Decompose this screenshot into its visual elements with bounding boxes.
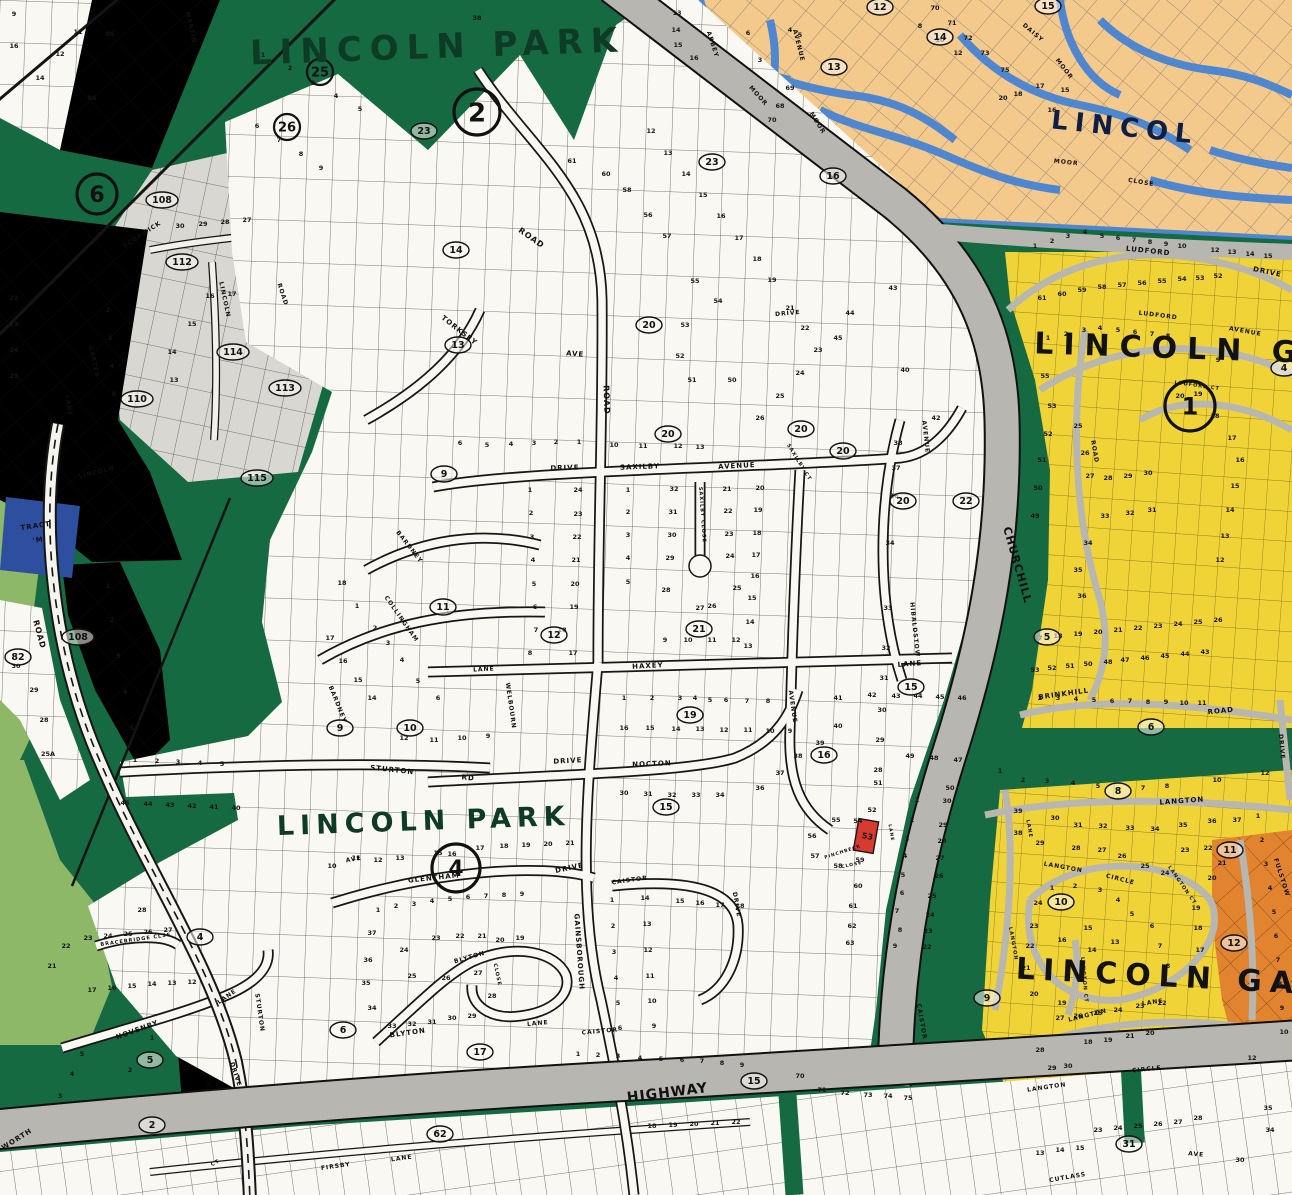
oval-marker: 108	[146, 192, 178, 208]
lot-number: 44	[1180, 650, 1190, 658]
lot-number: 12	[187, 978, 196, 986]
lot-number: 2	[110, 616, 115, 624]
lot-number: 35	[1263, 1104, 1273, 1112]
lot-number: 2	[1073, 882, 1078, 890]
lot-number: 19	[515, 934, 525, 942]
lot-number: 5	[1100, 232, 1105, 240]
lot-number: 18	[499, 842, 509, 850]
lot-number: 22	[731, 1118, 740, 1126]
oval-marker-number: 16	[826, 171, 840, 182]
lot-number: 14	[1055, 1146, 1065, 1154]
lot-number: 18	[1193, 924, 1203, 932]
lot-number: 6	[618, 1024, 623, 1032]
lot-number: 34	[885, 539, 895, 547]
lot-number: 16	[689, 54, 699, 62]
lot-number: 1	[998, 767, 1003, 775]
lot-number: 2	[611, 922, 616, 930]
lot-number: 18	[1083, 1038, 1093, 1046]
lot-number: 28	[937, 837, 947, 845]
lot-number: 70	[767, 116, 777, 124]
lot-number: 35	[1178, 821, 1188, 829]
lot-number: 20	[689, 1120, 699, 1128]
lot-number: 27	[1097, 846, 1106, 854]
lot-number: 6	[1110, 697, 1115, 705]
lot-number: 19	[569, 603, 579, 611]
lot-number: 31	[1147, 506, 1157, 514]
lot-number: 5	[112, 390, 117, 398]
oval-marker-number: 8	[1115, 786, 1122, 797]
lot-number: 15	[353, 676, 363, 684]
lot-number: 17	[751, 551, 760, 559]
lot-number: 9	[319, 164, 324, 172]
oval-marker-number: 17	[473, 1047, 486, 1058]
lot-number: 15	[1263, 252, 1273, 260]
plat-map-page: { "map": { "colors": { "base_green": "#1…	[0, 0, 1292, 1195]
lot-number: 42	[187, 802, 196, 810]
lot-number: 52	[1047, 664, 1056, 672]
lot-number: 58	[1097, 283, 1107, 291]
lot-number: 45	[935, 693, 945, 701]
oval-marker: 15	[741, 1073, 767, 1089]
lot-number: 3	[116, 652, 121, 660]
lot-number: 13	[1220, 532, 1229, 540]
lot-number: 17	[87, 986, 96, 994]
lot-number: 55	[690, 277, 700, 285]
oval-marker-number: 6	[340, 1025, 347, 1036]
lot-number: 11	[638, 442, 648, 450]
lot-number: 40	[833, 722, 843, 730]
lot-number: 27	[935, 854, 944, 862]
lot-number: 13	[695, 725, 704, 733]
lot-number: 14	[671, 26, 681, 34]
lot-number: 30	[942, 797, 952, 805]
lot-number: 24	[103, 932, 113, 940]
lot-number: 63	[845, 939, 854, 947]
lot-number: 20	[570, 580, 580, 588]
lot-number: 57	[1117, 281, 1126, 289]
lot-number: 38	[472, 14, 482, 22]
lot-number: 4	[1083, 228, 1088, 236]
lot-number: 25	[407, 972, 417, 980]
lot-number: 50	[1083, 660, 1093, 668]
lot-number: 30	[175, 222, 185, 230]
lot-number: 7	[1128, 697, 1133, 705]
lot-number: 49	[1030, 512, 1040, 520]
lot-number: 2	[394, 902, 399, 910]
lot-number: 17	[734, 234, 743, 242]
lot-number: 31	[668, 508, 678, 516]
lot-number: 24	[925, 911, 935, 919]
lot-number: 9	[663, 636, 668, 644]
lot-number: 52	[1213, 272, 1222, 280]
oval-marker: 2	[139, 1117, 165, 1133]
lot-number: 3	[758, 56, 763, 64]
oval-marker: 5	[137, 1052, 163, 1068]
lot-number: 23	[9, 320, 18, 328]
lot-number: 30	[1063, 1062, 1073, 1070]
lot-number: 28	[39, 716, 49, 724]
lot-number: 18	[647, 1122, 657, 1130]
lot-number: 45	[833, 334, 843, 342]
lot-number: 36	[755, 784, 765, 792]
lot-number: 7	[700, 1057, 705, 1065]
lot-number: 13	[1110, 938, 1119, 946]
lot-number: 21	[571, 556, 581, 564]
lot-number: 9	[740, 1061, 745, 1069]
lot-number: 5	[448, 895, 453, 903]
oval-marker: 11	[1217, 842, 1243, 858]
lot-number: 34	[367, 1004, 377, 1012]
oval-marker-number: 23	[705, 157, 718, 168]
lot-number: 7	[895, 907, 900, 915]
street-label: DRIVE	[550, 463, 579, 472]
lot-number: 6	[680, 1056, 685, 1064]
lot-number: 59	[1077, 286, 1087, 294]
lot-number: 54	[713, 297, 723, 305]
lot-number: 12	[55, 50, 64, 58]
lot-number: 2	[373, 624, 378, 632]
lot-number: 53	[1030, 666, 1039, 674]
lot-number: 29	[1035, 839, 1045, 847]
oval-marker-number: 11	[1223, 845, 1236, 856]
lot-number: 16	[1057, 936, 1067, 944]
oval-marker: 15	[653, 799, 679, 815]
lot-number: 29	[198, 220, 208, 228]
lot-number: 15	[675, 897, 685, 905]
lot-number: 22	[572, 533, 581, 541]
lot-number: 60	[601, 170, 611, 178]
lot-number: 53	[1195, 274, 1204, 282]
lot-number: 8	[528, 649, 533, 657]
lot-number: 58	[622, 186, 632, 194]
lot-number: 56	[643, 211, 653, 219]
lot-number: 40	[900, 366, 910, 374]
lot-number: 1	[133, 756, 138, 764]
lot-number: 61	[1037, 294, 1047, 302]
lot-number: 23	[1029, 922, 1038, 930]
lot-number: 30	[619, 789, 629, 797]
oval-marker-number: 14	[449, 245, 463, 256]
lot-number: 4	[1116, 896, 1121, 904]
lot-number: 17	[1227, 434, 1236, 442]
lot-number: 62	[847, 922, 856, 930]
lot-number: 4	[1268, 884, 1273, 892]
oval-marker: 11	[430, 599, 456, 615]
lot-number: 29	[29, 686, 39, 694]
lot-number: 8	[918, 22, 923, 30]
lot-number: 43	[1200, 648, 1209, 656]
lot-number: 86	[87, 94, 97, 102]
lot-number: 24	[1173, 620, 1183, 628]
lot-number: 14	[35, 74, 45, 82]
lot-number: 23	[1153, 622, 1162, 630]
lot-number: 22	[922, 943, 931, 951]
lot-number: 1	[576, 1050, 581, 1058]
lot-number: 8	[1165, 782, 1170, 790]
lot-number: 6	[1274, 932, 1279, 940]
lot-number: 10	[1212, 776, 1222, 784]
lot-number: 16	[750, 572, 760, 580]
lot-number: 18	[337, 579, 347, 587]
oval-marker: 5	[1034, 629, 1060, 645]
lot-number: 5	[130, 724, 135, 732]
lot-number: 5	[1130, 910, 1135, 918]
lot-number: 9	[1280, 1004, 1285, 1012]
lot-number: 2	[106, 306, 111, 314]
lot-number: 37	[891, 464, 900, 472]
lot-number: 45	[1160, 652, 1170, 660]
highlighted-lot-number: 53	[861, 831, 874, 842]
lot-number: 4	[110, 362, 115, 370]
lot-number: 22	[1133, 624, 1142, 632]
lot-number: 32	[1125, 509, 1134, 517]
lot-number: 18	[1013, 90, 1023, 98]
lot-number: 12	[673, 442, 682, 450]
lot-number: 50	[1033, 484, 1043, 492]
lot-number: 9	[893, 942, 898, 950]
lot-number: 15	[673, 41, 683, 49]
lot-number: 6	[255, 122, 260, 130]
oval-marker-number: 15	[747, 1076, 760, 1087]
lot-number: 20	[543, 840, 553, 848]
oval-marker: 6	[1138, 719, 1164, 735]
lot-number: 4	[614, 974, 619, 982]
lot-number: 23	[83, 934, 92, 942]
lot-number: 7	[534, 626, 539, 634]
lot-number: 16	[338, 657, 348, 665]
lot-number: 27	[1085, 472, 1094, 480]
oval-marker-number: 20	[836, 446, 850, 457]
oval-marker-number: 62	[433, 1129, 446, 1140]
lot-number: 21	[47, 962, 57, 970]
lot-number: 15	[645, 724, 655, 732]
oval-marker: 23	[411, 123, 437, 139]
lot-number: 4	[198, 759, 203, 767]
lot-number: 27	[695, 604, 704, 612]
oval-marker-number: 82	[11, 652, 24, 663]
lot-number: 12	[1210, 246, 1219, 254]
lot-number: 6	[1116, 234, 1121, 242]
lot-number: 55	[1040, 372, 1050, 380]
lot-number: 14	[640, 894, 650, 902]
lot-number: 22	[9, 294, 18, 302]
lot-number: 12	[1260, 769, 1269, 777]
lot-number: 22	[723, 507, 732, 515]
lot-number: 2	[128, 1066, 133, 1074]
lot-number: 7	[1141, 784, 1146, 792]
lot-number: 11	[743, 726, 753, 734]
lot-number: 25	[1133, 1122, 1143, 1130]
oval-marker-number: 9	[337, 723, 344, 734]
lot-number: 24	[795, 369, 805, 377]
lot-number: 32	[881, 644, 890, 652]
lot-number: 16	[1235, 456, 1245, 464]
lot-number: 26	[1080, 449, 1090, 457]
lot-number: 61	[848, 902, 858, 910]
oval-marker-number: 15	[904, 682, 917, 693]
oval-marker-number: 31	[1122, 1139, 1135, 1150]
lot-number: 20	[1145, 1029, 1155, 1037]
lot-number: 1	[915, 796, 920, 804]
lot-number: 17	[227, 290, 236, 298]
lot-number: 19	[521, 841, 531, 849]
oval-marker-number: 113	[275, 383, 295, 394]
lot-number: 1	[376, 906, 381, 914]
lot-number: 32	[1098, 822, 1107, 830]
lot-number: 51	[687, 376, 697, 384]
lot-number: 41	[209, 803, 219, 811]
oval-marker: 115	[241, 470, 273, 486]
lot-number: 14	[147, 980, 157, 988]
lot-number: 14	[1245, 250, 1255, 258]
lot-number: 4	[70, 1070, 75, 1078]
lot-number: 9	[520, 890, 525, 898]
oval-marker-number: 20	[794, 424, 808, 435]
oval-marker: 10	[397, 720, 423, 736]
lot-number: 3	[1264, 860, 1269, 868]
lot-number: 9	[1164, 698, 1169, 706]
lot-number: 22	[455, 932, 464, 940]
lot-number: 8	[299, 150, 304, 158]
lot-number: 21	[565, 839, 575, 847]
lot-number: 43	[891, 692, 900, 700]
lot-number: 22	[800, 324, 809, 332]
lot-number: 1	[106, 582, 111, 590]
lot-number: 12	[719, 726, 728, 734]
lot-number: 14	[671, 725, 681, 733]
lot-number: 17	[325, 634, 334, 642]
lot-number: 9	[12, 10, 17, 18]
oval-marker: 62	[427, 1126, 453, 1142]
lot-number: 17	[715, 901, 724, 909]
lot-number: 10	[765, 727, 775, 735]
oval-marker: 14	[927, 29, 953, 45]
lot-number: 4	[334, 92, 339, 100]
lot-number: 3	[626, 531, 631, 539]
lot-number: 26	[1117, 852, 1127, 860]
lot-number: 7	[745, 697, 750, 705]
lot-number: 5	[708, 696, 713, 704]
lot-number: 22	[1203, 844, 1212, 852]
lot-number: 28	[1193, 1114, 1203, 1122]
lot-number: 1	[610, 896, 615, 904]
lot-number: 29	[467, 1012, 477, 1020]
oval-marker: 31	[1116, 1136, 1142, 1152]
lot-number: 5	[485, 441, 490, 449]
lot-number: 24	[573, 486, 583, 494]
oval-marker: 19	[677, 707, 703, 723]
lot-number: 34	[1265, 1126, 1275, 1134]
lot-number: 28	[487, 992, 497, 1000]
lot-number: 43	[888, 284, 897, 292]
lot-number: 10	[647, 997, 657, 1005]
lot-number: 26	[707, 602, 717, 610]
lot-number: 8	[1146, 698, 1151, 706]
lot-number: 15	[127, 982, 137, 990]
lot-number: 40	[231, 804, 241, 812]
lot-number: 73	[863, 1091, 872, 1099]
lot-number: 25	[9, 372, 19, 380]
lot-number: 6	[1150, 922, 1155, 930]
lot-number: 9	[486, 732, 491, 740]
lot-number: 24	[1113, 1006, 1123, 1014]
lot-number: 6	[724, 696, 729, 704]
lot-number: 52	[1043, 430, 1052, 438]
highlight-label-layer: 53	[861, 831, 874, 842]
lot-number: 28	[220, 218, 230, 226]
lot-number: 7	[1276, 956, 1281, 964]
lot-number: 23	[724, 530, 733, 538]
lot-number: 34	[715, 791, 725, 799]
lot-number: 48	[1103, 658, 1113, 666]
oval-marker-number: 108	[68, 632, 88, 643]
lot-number: 30	[447, 1014, 457, 1022]
lot-number: 21	[1113, 626, 1123, 634]
lot-number: 35	[1073, 566, 1083, 574]
lot-number: 3	[1066, 232, 1071, 240]
lot-number: 60	[853, 882, 863, 890]
district-number: 1	[1182, 393, 1199, 421]
lot-number: 5	[901, 871, 906, 879]
street-label: SAXILBY	[620, 462, 660, 471]
oval-marker: 20	[830, 443, 856, 459]
lot-number: 16	[9, 42, 19, 50]
lot-number: 20	[495, 936, 505, 944]
lot-number: 4	[626, 554, 631, 562]
lot-number: 12	[373, 856, 382, 864]
oval-marker-number: 20	[896, 496, 910, 507]
oval-marker-number: 9	[984, 993, 991, 1004]
lot-number: 8	[766, 697, 771, 705]
oval-marker-number: 20	[642, 320, 656, 331]
lot-number: 19	[1103, 1036, 1113, 1044]
lot-number: 31	[879, 674, 889, 682]
lot-number: 6	[466, 893, 471, 901]
lot-number: 69	[785, 84, 795, 92]
lot-number: 39	[1013, 807, 1023, 815]
lot-number: 20	[1207, 874, 1217, 882]
lot-number: 8	[898, 926, 903, 934]
lot-number: 4	[430, 897, 435, 905]
lot-number: 32	[667, 791, 676, 799]
lot-number: 25	[1193, 618, 1203, 626]
lot-number: 3	[386, 639, 391, 647]
lot-number: 47	[1120, 656, 1129, 664]
lot-number: 46	[1140, 654, 1150, 662]
oval-marker: 82	[5, 649, 31, 665]
lot-number: 18	[752, 255, 762, 263]
lot-number: 25	[927, 892, 937, 900]
lot-number: 75	[1000, 66, 1010, 74]
oval-marker: 6	[330, 1022, 356, 1038]
lot-number: 37	[367, 929, 376, 937]
oval-marker: 12	[867, 0, 893, 15]
oval-marker: 21	[686, 621, 712, 637]
oval-marker: 15	[898, 679, 924, 695]
lot-number: 11	[645, 972, 655, 980]
lot-number: 33	[1125, 824, 1134, 832]
oval-marker-number: 15	[659, 802, 672, 813]
lot-number: 73	[980, 49, 989, 57]
lot-number: 42	[867, 691, 876, 699]
lot-number: 13	[169, 376, 178, 384]
lot-number: 20	[755, 484, 765, 492]
lot-number: 12	[731, 636, 740, 644]
oval-marker: 23	[699, 154, 725, 170]
lot-number: 6	[746, 29, 751, 37]
lot-number: 9	[1164, 240, 1169, 248]
lot-number: 10	[457, 734, 467, 742]
